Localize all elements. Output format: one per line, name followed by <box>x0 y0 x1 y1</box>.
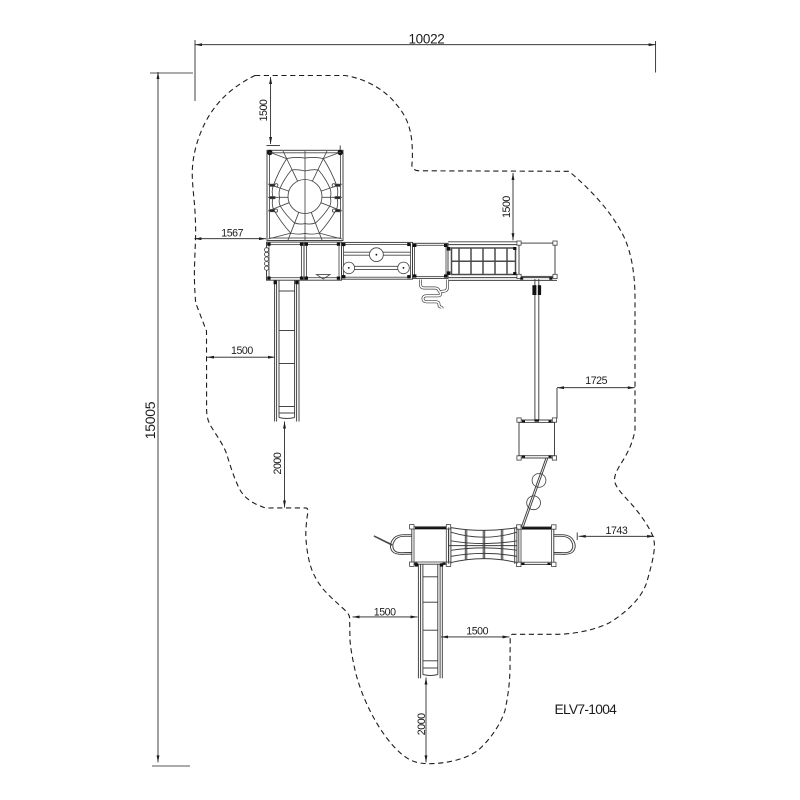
svg-text:15005: 15005 <box>142 401 158 439</box>
svg-text:1500: 1500 <box>258 99 270 121</box>
svg-text:1500: 1500 <box>466 626 488 638</box>
svg-text:1500: 1500 <box>374 607 396 619</box>
svg-text:2000: 2000 <box>416 713 428 735</box>
svg-text:10022: 10022 <box>408 32 444 47</box>
svg-text:1567: 1567 <box>221 228 243 240</box>
svg-text:1500: 1500 <box>501 196 513 218</box>
svg-text:1743: 1743 <box>606 525 628 537</box>
svg-text:2000: 2000 <box>272 452 284 474</box>
svg-text:1500: 1500 <box>231 345 253 357</box>
svg-text:ELV7-1004: ELV7-1004 <box>554 702 617 717</box>
svg-text:1725: 1725 <box>585 375 607 387</box>
